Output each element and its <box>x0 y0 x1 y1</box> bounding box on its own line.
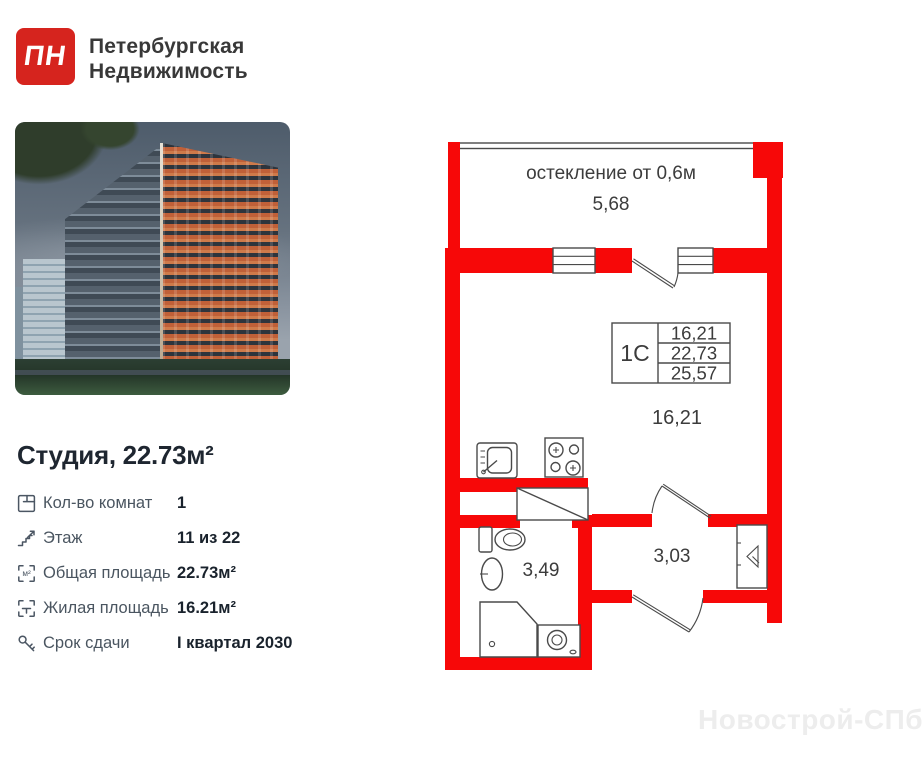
stove-icon <box>545 438 583 477</box>
watermark: Новострой-СПб <box>698 704 922 736</box>
entrance-door-swing <box>632 595 703 632</box>
spec-row-completion: Срок сдачи I квартал 2030 <box>17 626 307 661</box>
spec-row-floor: Этаж 11 из 22 <box>17 521 307 556</box>
spec-row-living-area: Жилая площадь 16.21м² <box>17 591 307 626</box>
brand-line2: Недвижимость <box>89 60 248 85</box>
balcony-door <box>632 259 678 288</box>
spec-row-rooms: Кол-во комнат 1 <box>17 486 307 521</box>
floor-plan: 1С 16,21 22,73 25,57 остекление от 0,6м … <box>430 120 922 680</box>
brand-line1: Петербургская <box>89 35 248 60</box>
photo-foliage-2 <box>75 122 145 154</box>
hallway-area-label: 3,03 <box>654 546 691 567</box>
toilet-icon <box>479 527 525 552</box>
bathroom-area-label: 3,49 <box>523 560 560 581</box>
unit-info-table: 1С 16,21 22,73 25,57 <box>612 323 730 384</box>
floor-stairs-icon <box>17 529 36 548</box>
total-with-balcony-value: 25,57 <box>671 363 717 384</box>
unit-label: 1С <box>620 340 649 366</box>
photo-ground <box>15 359 290 395</box>
room-area-label: 16,21 <box>652 407 702 429</box>
spec-value: 1 <box>177 494 186 513</box>
listing-title: Студия, 22.73м² <box>17 440 214 471</box>
key-icon <box>17 634 36 653</box>
spec-label: Этаж <box>43 529 82 548</box>
specs-list: Кол-во комнат 1 Этаж 11 из 22 м² Общая п… <box>17 486 307 661</box>
spec-label: Кол-во комнат <box>43 494 152 513</box>
brand-title: Петербургская Недвижимость <box>89 35 248 84</box>
total-area-icon: м² <box>17 564 36 583</box>
living-area-icon <box>17 599 36 618</box>
living-area-value: 16,21 <box>671 323 717 344</box>
room-door <box>652 484 711 518</box>
listing-page: ПН Петербургская Недвижимость Студия, 22… <box>0 0 922 768</box>
shower-icon <box>480 602 537 657</box>
glazing-note: остекление от 0,6м <box>526 163 696 184</box>
window <box>553 248 595 273</box>
spec-row-total-area: м² Общая площадь 22.73м² <box>17 556 307 591</box>
photo-building-orange-face <box>162 143 278 367</box>
spec-label: Жилая площадь <box>43 599 169 618</box>
spec-label: Общая площадь <box>43 564 170 583</box>
balcony-length-label: 5,68 <box>593 194 630 215</box>
spec-value: I квартал 2030 <box>177 634 292 653</box>
spec-value: 22.73м² <box>177 564 236 583</box>
spec-value: 16.21м² <box>177 599 236 618</box>
building-photo <box>15 122 290 395</box>
svg-text:м²: м² <box>22 569 31 578</box>
vent-shaft-icon <box>517 488 588 520</box>
photo-building-corner <box>160 143 163 366</box>
walls <box>445 142 783 670</box>
window <box>678 248 713 273</box>
total-area-value: 22,73 <box>671 343 717 364</box>
spec-label: Срок сдачи <box>43 634 130 653</box>
spec-value: 11 из 22 <box>177 529 240 548</box>
photo-road <box>15 370 290 375</box>
room-count-icon <box>17 494 36 513</box>
brand-logo: ПН <box>16 28 75 85</box>
sink-icon <box>477 443 517 478</box>
washbasin-icon <box>480 558 503 590</box>
balcony-glazing-line <box>455 143 754 149</box>
entrance-door-niche <box>737 525 767 588</box>
washing-machine-icon <box>538 625 580 657</box>
logo-monogram: ПН <box>22 40 69 74</box>
